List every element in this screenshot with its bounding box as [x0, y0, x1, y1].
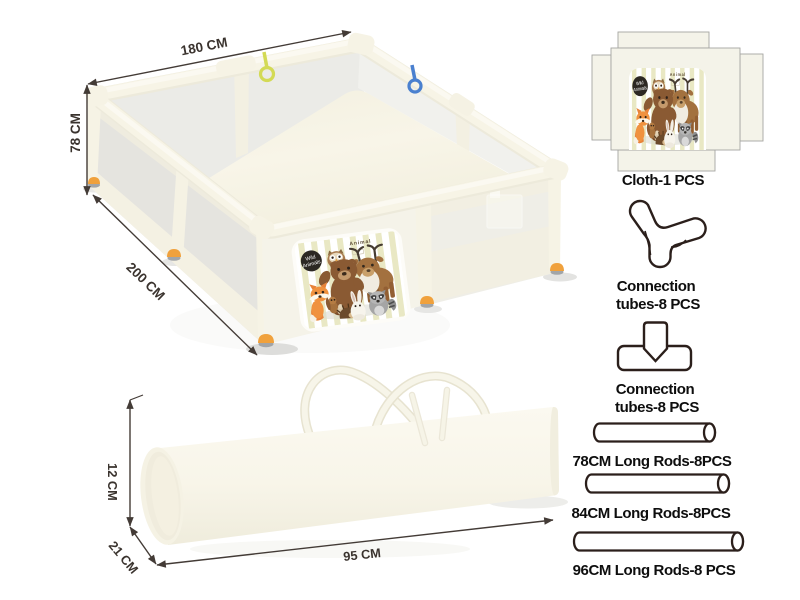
- svg-text:Cloth-1 PCS: Cloth-1 PCS: [622, 172, 705, 189]
- svg-text:84CM Long Rods-8PCS: 84CM Long Rods-8PCS: [571, 505, 730, 522]
- svg-text:Connection: Connection: [617, 278, 696, 295]
- svg-text:180 CM: 180 CM: [179, 35, 228, 59]
- svg-text:Connection: Connection: [616, 381, 695, 398]
- svg-text:200 CM: 200 CM: [123, 260, 167, 304]
- svg-text:tubes-8 PCS: tubes-8 PCS: [616, 296, 700, 313]
- svg-text:96CM Long Rods-8 PCS: 96CM Long Rods-8 PCS: [573, 562, 736, 579]
- svg-text:12 CM: 12 CM: [105, 463, 120, 501]
- svg-text:95 CM: 95 CM: [343, 545, 382, 564]
- svg-text:tubes-8 PCS: tubes-8 PCS: [615, 399, 699, 416]
- svg-text:78CM Long Rods-8PCS: 78CM Long Rods-8PCS: [572, 453, 731, 470]
- svg-text:78 CM: 78 CM: [68, 113, 83, 153]
- svg-text:21 CM: 21 CM: [106, 538, 142, 577]
